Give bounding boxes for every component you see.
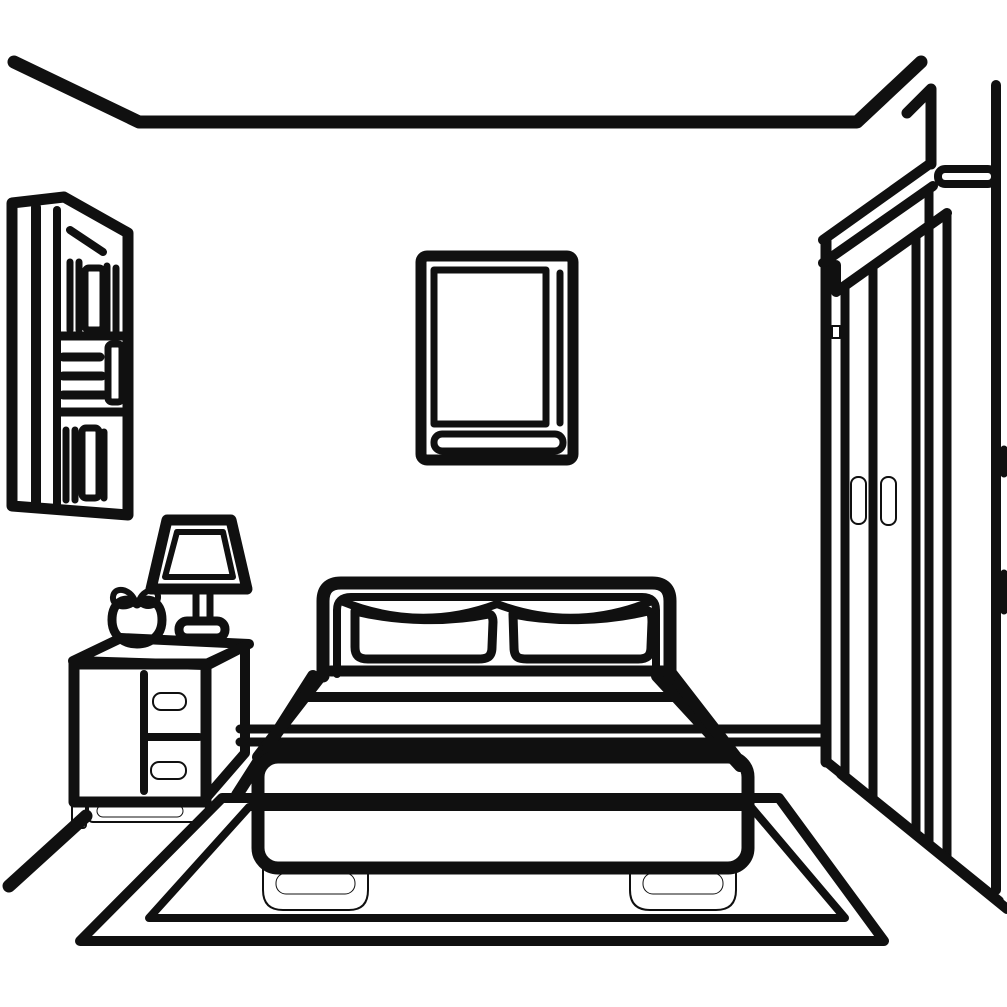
bookshelf-slanted-book: [70, 230, 103, 252]
books-top-wide-book: [85, 268, 103, 330]
bed-foot-right-inner: [643, 873, 723, 894]
wardrobe-handle-right: [881, 477, 896, 525]
wardrobe-front-corner-lines: [929, 190, 947, 858]
wardrobe-door-lines: [845, 235, 916, 834]
bed-base: [258, 757, 748, 868]
bedroom-line-art-svg: [0, 0, 1007, 1007]
lamp-shade-inner-line: [165, 532, 233, 577]
picture-frame-outer: [421, 256, 573, 460]
baseboard-left-diagonal: [9, 816, 86, 886]
drawer-handle-bottom: [151, 762, 186, 779]
books-mid-vertical-book: [108, 344, 122, 402]
picture-frame-inner: [434, 270, 546, 424]
nightstand-side-face: [206, 646, 245, 798]
picture-frame-bottom-strip: [434, 434, 563, 451]
bedroom-line-art: [0, 0, 1007, 1007]
books-top-shelf: [70, 262, 116, 332]
books-bottom-wide-book: [82, 428, 99, 498]
pillow-left: [355, 611, 493, 659]
pillow-right: [513, 611, 652, 659]
books-mid-stack: [63, 357, 104, 395]
wardrobe-handle-left: [851, 477, 866, 524]
ceiling-line: [14, 62, 921, 122]
wardrobe-top-face-pill: [938, 169, 995, 184]
lamp-base: [179, 621, 225, 638]
wall-floor-line: [240, 729, 824, 742]
bed-foot-left-inner: [276, 873, 355, 894]
drawer-handle-top: [153, 693, 186, 710]
wardrobe-hinge: [832, 326, 840, 338]
wall-corner-right: [907, 89, 931, 164]
